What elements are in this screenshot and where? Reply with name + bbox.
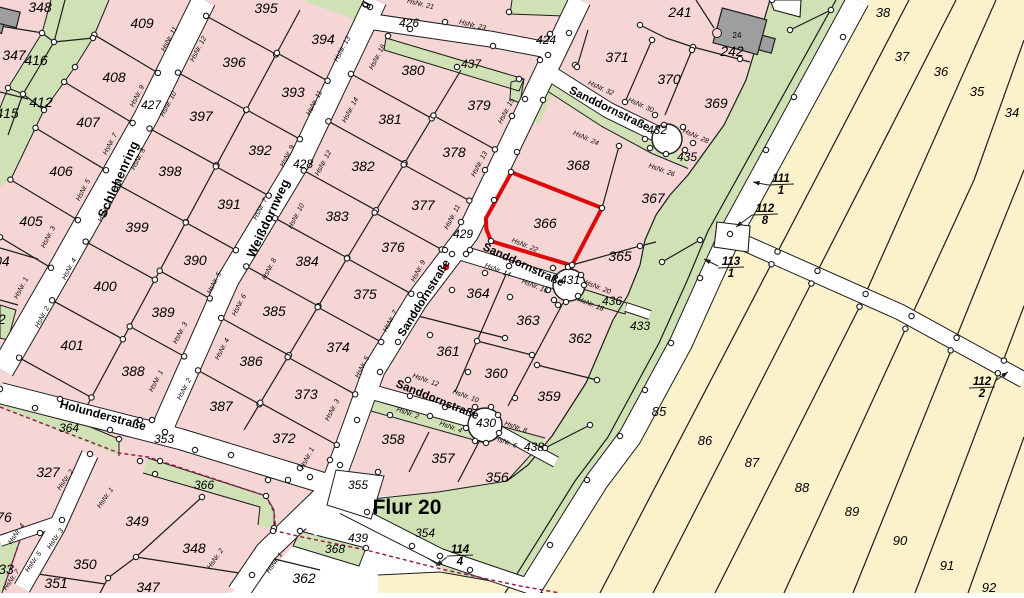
svg-text:406: 406 — [49, 163, 73, 179]
svg-text:428: 428 — [293, 157, 313, 171]
svg-text:364: 364 — [466, 285, 490, 301]
svg-text:399: 399 — [125, 219, 149, 235]
svg-text:357: 357 — [431, 450, 456, 466]
svg-text:34: 34 — [1005, 105, 1019, 120]
svg-text:365: 365 — [608, 248, 632, 264]
svg-text:400: 400 — [93, 278, 117, 294]
svg-text:86: 86 — [698, 433, 713, 448]
svg-text:354: 354 — [415, 526, 435, 540]
svg-text:436: 436 — [602, 294, 622, 308]
svg-text:426: 426 — [399, 16, 419, 30]
svg-text:382: 382 — [351, 158, 375, 174]
svg-text:348: 348 — [182, 540, 206, 556]
svg-text:37: 37 — [895, 49, 910, 64]
svg-text:359: 359 — [537, 388, 561, 404]
svg-text:113: 113 — [722, 256, 741, 268]
svg-text:353: 353 — [154, 432, 174, 446]
svg-text:416: 416 — [24, 52, 48, 68]
svg-text:363: 363 — [516, 312, 540, 328]
svg-text:366: 366 — [194, 478, 214, 492]
svg-text:395: 395 — [254, 0, 278, 16]
svg-text:76: 76 — [0, 509, 12, 525]
svg-text:378: 378 — [442, 144, 466, 160]
svg-text:Flur 20: Flur 20 — [373, 496, 442, 519]
svg-text:430: 430 — [476, 416, 496, 430]
svg-text:375: 375 — [353, 286, 377, 302]
svg-text:364: 364 — [59, 421, 79, 435]
svg-text:356: 356 — [485, 469, 509, 485]
svg-text:372: 372 — [272, 430, 296, 446]
svg-text:1: 1 — [778, 185, 784, 197]
svg-text:408: 408 — [102, 69, 126, 85]
svg-text:36: 36 — [934, 64, 949, 79]
svg-text:1: 1 — [728, 268, 734, 280]
svg-text:367: 367 — [641, 190, 666, 206]
svg-text:439: 439 — [348, 531, 368, 545]
svg-text:415: 415 — [0, 105, 19, 121]
svg-text:87: 87 — [745, 455, 760, 470]
svg-text:376: 376 — [381, 239, 405, 255]
svg-text:424: 424 — [536, 33, 556, 47]
svg-text:348: 348 — [28, 0, 52, 15]
svg-text:358: 358 — [381, 431, 405, 447]
svg-text:383: 383 — [325, 208, 349, 224]
svg-text:401: 401 — [60, 337, 83, 353]
svg-text:362: 362 — [292, 570, 316, 586]
svg-text:433: 433 — [630, 319, 650, 333]
svg-text:386: 386 — [239, 353, 263, 369]
svg-text:371: 371 — [605, 49, 628, 65]
svg-text:384: 384 — [295, 253, 319, 269]
svg-text:355: 355 — [348, 478, 368, 492]
svg-text:360: 360 — [484, 365, 508, 381]
svg-text:242: 242 — [719, 43, 744, 59]
svg-text:391: 391 — [217, 196, 240, 212]
svg-text:380: 380 — [401, 62, 425, 78]
svg-text:402: 402 — [0, 311, 6, 327]
svg-text:85: 85 — [652, 404, 667, 419]
svg-text:388: 388 — [121, 363, 145, 379]
svg-text:389: 389 — [151, 304, 175, 320]
svg-text:361: 361 — [436, 343, 459, 359]
svg-text:429: 429 — [453, 227, 473, 241]
svg-text:90: 90 — [893, 533, 908, 548]
svg-text:397: 397 — [189, 108, 214, 124]
svg-text:407: 407 — [76, 114, 101, 130]
svg-text:327: 327 — [36, 464, 61, 480]
svg-text:38: 38 — [876, 5, 891, 20]
svg-text:347: 347 — [2, 47, 27, 63]
svg-text:88: 88 — [795, 480, 810, 495]
svg-text:362: 362 — [568, 330, 592, 346]
svg-text:111: 111 — [772, 173, 789, 185]
svg-text:112: 112 — [973, 376, 992, 388]
svg-text:381: 381 — [378, 111, 401, 127]
svg-text:350: 350 — [73, 556, 97, 572]
svg-text:387: 387 — [209, 398, 234, 414]
svg-text:427: 427 — [141, 98, 162, 112]
svg-text:24: 24 — [733, 31, 742, 40]
svg-text:379: 379 — [467, 97, 491, 113]
svg-text:374: 374 — [326, 339, 350, 355]
svg-text:393: 393 — [281, 84, 305, 100]
svg-text:347: 347 — [136, 579, 161, 593]
svg-text:405: 405 — [19, 213, 43, 229]
svg-text:385: 385 — [262, 303, 286, 319]
svg-text:368: 368 — [566, 157, 590, 173]
svg-text:4: 4 — [456, 556, 464, 568]
svg-text:91: 91 — [940, 558, 954, 573]
svg-text:412: 412 — [29, 94, 53, 110]
svg-text:435: 435 — [677, 150, 697, 164]
svg-text:369: 369 — [704, 95, 728, 111]
svg-text:368: 368 — [325, 542, 345, 556]
svg-text:404: 404 — [0, 253, 10, 269]
svg-text:2: 2 — [978, 388, 986, 400]
svg-text:89: 89 — [845, 504, 859, 519]
svg-text:390: 390 — [183, 252, 207, 268]
svg-text:114: 114 — [451, 544, 470, 556]
svg-text:241: 241 — [667, 4, 691, 20]
svg-text:377: 377 — [411, 197, 436, 213]
svg-text:409: 409 — [130, 15, 154, 31]
svg-text:373: 373 — [294, 386, 318, 402]
svg-text:351: 351 — [44, 575, 67, 591]
svg-text:370: 370 — [657, 71, 681, 87]
svg-text:349: 349 — [125, 513, 149, 529]
svg-text:8: 8 — [762, 215, 769, 227]
svg-text:92: 92 — [982, 580, 997, 593]
svg-text:366: 366 — [533, 215, 557, 231]
svg-text:438: 438 — [524, 440, 544, 454]
svg-text:394: 394 — [311, 31, 335, 47]
svg-text:392: 392 — [248, 142, 272, 158]
svg-text:35: 35 — [970, 84, 985, 99]
svg-text:112: 112 — [756, 203, 775, 215]
svg-text:398: 398 — [158, 163, 182, 179]
svg-text:437: 437 — [461, 57, 482, 71]
svg-text:396: 396 — [222, 54, 246, 70]
